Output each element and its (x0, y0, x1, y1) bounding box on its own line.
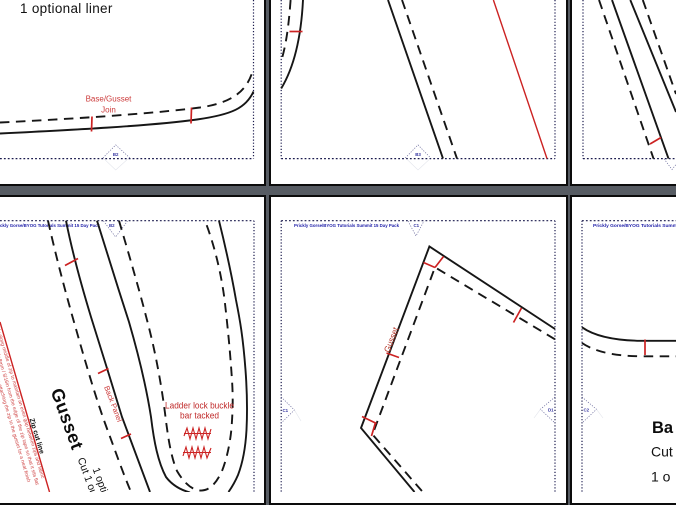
svg-text:bar tacked: bar tacked (180, 411, 219, 421)
svg-text:B3: B3 (415, 152, 421, 157)
svg-text:Prickly Gorse/BYOG Tutorials S: Prickly Gorse/BYOG Tutorials Summ (593, 223, 676, 229)
svg-text:Back Panel: Back Panel (102, 384, 124, 423)
svg-text:Base/Gusset: Base/Gusset (86, 95, 133, 104)
svg-text:Cut: Cut (651, 444, 673, 460)
svg-text:Ladder lock buckle: Ladder lock buckle (165, 401, 234, 411)
svg-text:Ba: Ba (652, 419, 674, 437)
svg-text:B2: B2 (109, 223, 115, 228)
svg-text:Gusset: Gusset (47, 386, 88, 453)
svg-text:C1: C1 (414, 223, 420, 228)
svg-text:D1: D1 (548, 408, 554, 413)
svg-text:Join: Join (101, 106, 116, 115)
svg-text:Prickly Gorse/BYOG Tutorials S: Prickly Gorse/BYOG Tutorials Summit 15 D… (294, 223, 399, 229)
svg-text:C2: C2 (584, 408, 590, 413)
svg-text:1 optional liner: 1 optional liner (20, 1, 113, 16)
svg-text:B2: B2 (113, 152, 119, 157)
svg-text:C1: C1 (283, 408, 289, 413)
svg-text:1 o: 1 o (651, 469, 671, 485)
svg-text:Gusset: Gusset (382, 325, 401, 353)
